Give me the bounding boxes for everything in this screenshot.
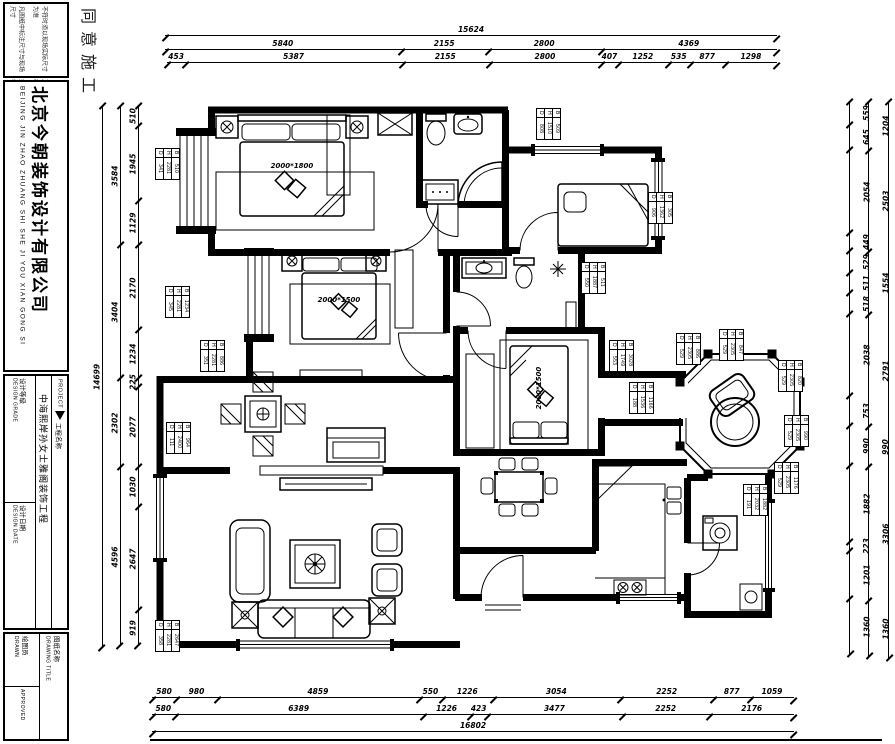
dimension-segment: 6389 xyxy=(175,703,423,715)
dimension-segment: 1554 xyxy=(857,252,869,315)
dim-tag: D808H1510B509 xyxy=(536,108,561,140)
dim-tag: D191H2032B1882 xyxy=(743,484,768,516)
dimension-segment: 919 xyxy=(138,610,150,646)
dim-tag: D553H1749B3028 xyxy=(609,340,634,372)
dim-tag-column: H2305 xyxy=(728,330,736,360)
dimension-segment: 580 xyxy=(152,703,175,715)
drawn-cell: DRAWN 绘图员 xyxy=(5,634,39,687)
project-label-column: PROJECT 工程名称 xyxy=(52,376,67,628)
dim-tag-column: H1510 xyxy=(545,109,553,139)
floor-plan: 2000*1800 2000*1500 xyxy=(150,88,840,688)
project-box: DESIGN GRADE 设计等级 DESIGN DATE 设计日期 中海熙岸孙… xyxy=(3,374,69,630)
dimension-segment: 1030 xyxy=(138,467,150,507)
company-box: BEIJING JIN ZHAO ZHUANG SHI SHE JI YOU X… xyxy=(3,80,69,372)
bed-size-label: 2000*1800 xyxy=(271,162,314,170)
drawn-label-cn: 绘图员 xyxy=(21,636,31,684)
company-name-en: BEIJING JIN ZHAO ZHUANG SHI SHE JI YOU X… xyxy=(19,86,26,366)
dimension-segment: 16802 xyxy=(152,720,794,732)
dim-tag-column: H2305 xyxy=(783,463,791,493)
dim-tag: D341H2281B510 xyxy=(155,148,180,180)
dim-tag-column: D529 xyxy=(677,334,685,364)
dim-tag-column: D191 xyxy=(744,485,752,515)
dim-tag-column: D111 xyxy=(167,423,175,453)
dim-tag-column: B820 xyxy=(795,361,802,391)
dimension-segment: 2503 xyxy=(857,151,869,252)
dim-tag: D550H1887B511 xyxy=(581,262,606,294)
dim-tag-column: H2281 xyxy=(164,621,172,651)
drawn-box: DRAWN 绘图员 APPROVED DRAWING TITLE 图纸名称 xyxy=(3,632,69,741)
tea-room xyxy=(221,372,385,462)
drawn-column: DRAWN 绘图员 APPROVED xyxy=(5,634,40,739)
dim-tag: D529H2305B847 xyxy=(719,329,744,361)
project-label-cn: 工程名称 xyxy=(55,423,65,449)
dim-tag-column: D351 xyxy=(201,341,209,371)
laundry-balcony xyxy=(703,516,762,610)
dimension-segment: 1298 xyxy=(725,51,777,63)
project-label-en: PROJECT xyxy=(57,379,63,408)
dimension-segment: 2252 xyxy=(622,703,710,715)
note-line: 凡图纸中标注尺寸与现场尺寸 xyxy=(6,6,25,74)
dim-tag-column: D341 xyxy=(156,149,164,179)
dimension-segment: 2176 xyxy=(709,703,794,715)
dim-tag-column: D550 xyxy=(582,263,590,293)
dim-tag: D906H1362B305 xyxy=(648,192,673,224)
dimension-segment: 14707 xyxy=(877,102,889,658)
dimension-segment: 407 xyxy=(601,51,617,63)
bed-size-label: 2000*1500 xyxy=(535,367,543,410)
dimension-segment: 1129 xyxy=(138,201,150,245)
dim-tag-column: B510 xyxy=(172,149,179,179)
dimension-segment: 15624 xyxy=(165,24,777,36)
dim-row-bottom-overall: 16802 xyxy=(152,720,794,732)
dim-tag-column: D808 xyxy=(537,109,545,139)
dimension-segment: 2155 xyxy=(401,38,488,50)
bathroom-1 xyxy=(422,114,502,206)
design-grade-label-cn: 设计等级 xyxy=(19,378,29,500)
dim-tag-column: B886 xyxy=(693,334,700,364)
dim-tag-column: D529 xyxy=(779,361,787,391)
dim-tag-column: B964 xyxy=(183,423,190,453)
design-meta-column: DESIGN GRADE 设计等级 DESIGN DATE 设计日期 xyxy=(5,376,36,628)
dim-tag-column: B509 xyxy=(553,109,560,139)
design-date-label-en: DESIGN DATE xyxy=(12,505,18,627)
dim-tag: D529H2305B886 xyxy=(676,333,701,365)
triangle-marker-icon xyxy=(55,411,65,420)
dim-tag-column: D529 xyxy=(720,330,728,360)
dim-tag: D529H2305B820 xyxy=(778,360,803,392)
dimension-segment: 1945 xyxy=(138,126,150,202)
project-name: 中海熙岸孙女士雅阁装饰工程 xyxy=(37,376,50,628)
dimension-segment: 2077 xyxy=(138,387,150,468)
dimension-segment: 1252 xyxy=(618,51,668,63)
dimension-segment: 423 xyxy=(470,703,486,715)
dimension-segment: 1226 xyxy=(423,703,471,715)
approval-stamp: 同意施工 xyxy=(78,8,102,100)
bed-size-label: 2000*1500 xyxy=(318,296,361,304)
dim-tag-column: B847 xyxy=(736,330,743,360)
dim-tag-column: D188 xyxy=(630,383,638,413)
dim-tag-column: B990 xyxy=(801,416,808,446)
dim-tag-column: D529 xyxy=(775,463,783,493)
guest-room xyxy=(558,184,648,246)
dim-tag-column: H1749 xyxy=(618,341,626,371)
dimension-segment: 990 xyxy=(857,427,869,467)
bathroom-2 xyxy=(462,258,576,328)
dimension-segment: 877 xyxy=(690,51,725,63)
dim-tag-column: B1882 xyxy=(760,485,767,515)
dim-tag-column: B1176 xyxy=(791,463,798,493)
dim-tag-column: H2305 xyxy=(685,334,693,364)
dim-tag: D529H2305B990 xyxy=(784,415,809,447)
dim-tag-column: H2281 xyxy=(209,341,217,371)
dim-tag-column: B2647 xyxy=(172,621,179,651)
drawing-sheet: 凡图纸中标注尺寸与现场尺寸 不符时须以现场实际尺寸为准 如发现图中所示数字之差错… xyxy=(0,0,895,744)
dimension-segment: 3477 xyxy=(487,703,622,715)
dim-tag-column: H1887 xyxy=(590,263,598,293)
living-room xyxy=(230,466,402,638)
title-block: 凡图纸中标注尺寸与现场尺寸 不符时须以现场实际尺寸为准 如发现图中所示数字之差错… xyxy=(0,0,78,744)
dim-col-right-major: 120425031554279199033061360 xyxy=(857,102,869,656)
approved-cell: APPROVED xyxy=(5,687,39,739)
dim-tag: D529H2305B1176 xyxy=(774,462,799,494)
project-name-column: 中海熙岸孙女士雅阁装饰工程 xyxy=(36,376,52,628)
bedroom-third: 2000*1500 xyxy=(466,340,588,454)
dim-tag-column: H2305 xyxy=(793,416,801,446)
dim-tag-column: H1536 xyxy=(638,383,646,413)
sheet-border-line xyxy=(150,739,882,741)
drawing-title-label-cn: 图纸名称 xyxy=(53,636,63,737)
bedroom-master: 2000*1800 xyxy=(216,113,412,230)
dimension-segment: 2647 xyxy=(138,507,150,610)
dimension-segment: 3306 xyxy=(857,467,869,601)
kitchen xyxy=(595,466,681,595)
disclaimer-note-box: 凡图纸中标注尺寸与现场尺寸 不符时须以现场实际尺寸为准 如发现图中所示数字之差错… xyxy=(3,2,69,78)
dimension-segment: 453 xyxy=(167,51,185,63)
dim-tag-column: D529 xyxy=(785,416,793,446)
approved-label-en: APPROVED xyxy=(19,689,25,737)
dim-tag-column: H1362 xyxy=(657,193,665,223)
dim-tag: D111H2400B964 xyxy=(166,422,191,454)
dimension-segment: 4369 xyxy=(601,38,777,50)
dimension-segment: 2791 xyxy=(857,315,869,428)
drawn-label-en: DRAWN xyxy=(13,636,19,684)
dimension-segment: 5387 xyxy=(185,51,402,63)
dim-col-right-overall: 14707 xyxy=(877,102,889,658)
dim-row-top-detail: 45353872155280040712525358771298 xyxy=(167,51,777,63)
dimension-segment: 5840 xyxy=(165,38,401,50)
dim-tag-column: D358 xyxy=(156,621,164,651)
dim-tag-column: H2281 xyxy=(164,149,172,179)
dim-tag: D345H2281B1234 xyxy=(165,286,190,318)
dim-tag-column: H2281 xyxy=(174,287,182,317)
dimension-segment: 2800 xyxy=(488,38,601,50)
dimension-segment: 2155 xyxy=(402,51,489,63)
dim-row-top-major: 5840215528004369 xyxy=(165,38,777,50)
dimension-segment: 535 xyxy=(668,51,690,63)
dim-tag-column: H2305 xyxy=(787,361,795,391)
dim-tag-column: B511 xyxy=(598,263,605,293)
drawing-title-label-en: DRAWING TITLE xyxy=(45,636,51,737)
dim-row-top-overall: 15624 xyxy=(165,24,777,36)
dining-area xyxy=(481,458,557,516)
dimension-segment: 1360 xyxy=(857,601,869,656)
design-grade-cell: DESIGN GRADE 设计等级 xyxy=(5,376,35,503)
dim-col-left-detail: 5101945112921701234225207710302647919 xyxy=(138,106,150,646)
design-grade-label-en: DESIGN GRADE xyxy=(12,378,18,500)
dim-tag: D358H2281B2647 xyxy=(155,620,180,652)
dim-tag: D188H1536B1166 xyxy=(629,382,654,414)
dim-tag-column: B3028 xyxy=(626,341,633,371)
company-name-cn: 北京今朝装饰设计有限公司 xyxy=(29,86,54,366)
dim-tag-column: H2032 xyxy=(752,485,760,515)
dimension-segment: 1204 xyxy=(857,102,869,151)
bedroom-second: 2000*1500 xyxy=(282,250,413,378)
dim-tag-column: D553 xyxy=(610,341,618,371)
dimension-segment: 2170 xyxy=(138,245,150,329)
dim-tag-column: H2400 xyxy=(175,423,183,453)
dim-tag-column: B1166 xyxy=(646,383,653,413)
note-line: 不符时须以现场实际尺寸为准 xyxy=(29,6,48,74)
dim-tag-column: B886 xyxy=(217,341,224,371)
dimension-segment: 2800 xyxy=(489,51,602,63)
dim-tag-column: D345 xyxy=(166,287,174,317)
dim-tag-column: B305 xyxy=(665,193,672,223)
dim-tag-column: D906 xyxy=(649,193,657,223)
drawing-title-column: DRAWING TITLE 图纸名称 xyxy=(40,634,67,739)
design-date-label-cn: 设计日期 xyxy=(19,505,29,627)
dim-tag-column: B1234 xyxy=(182,287,189,317)
design-date-cell: DESIGN DATE 设计日期 xyxy=(5,503,35,629)
dim-row-bottom-major: 58063891226423347722522176 xyxy=(152,703,794,715)
dim-tag: D351H2281B886 xyxy=(200,340,225,372)
dimension-segment: 1234 xyxy=(138,330,150,378)
